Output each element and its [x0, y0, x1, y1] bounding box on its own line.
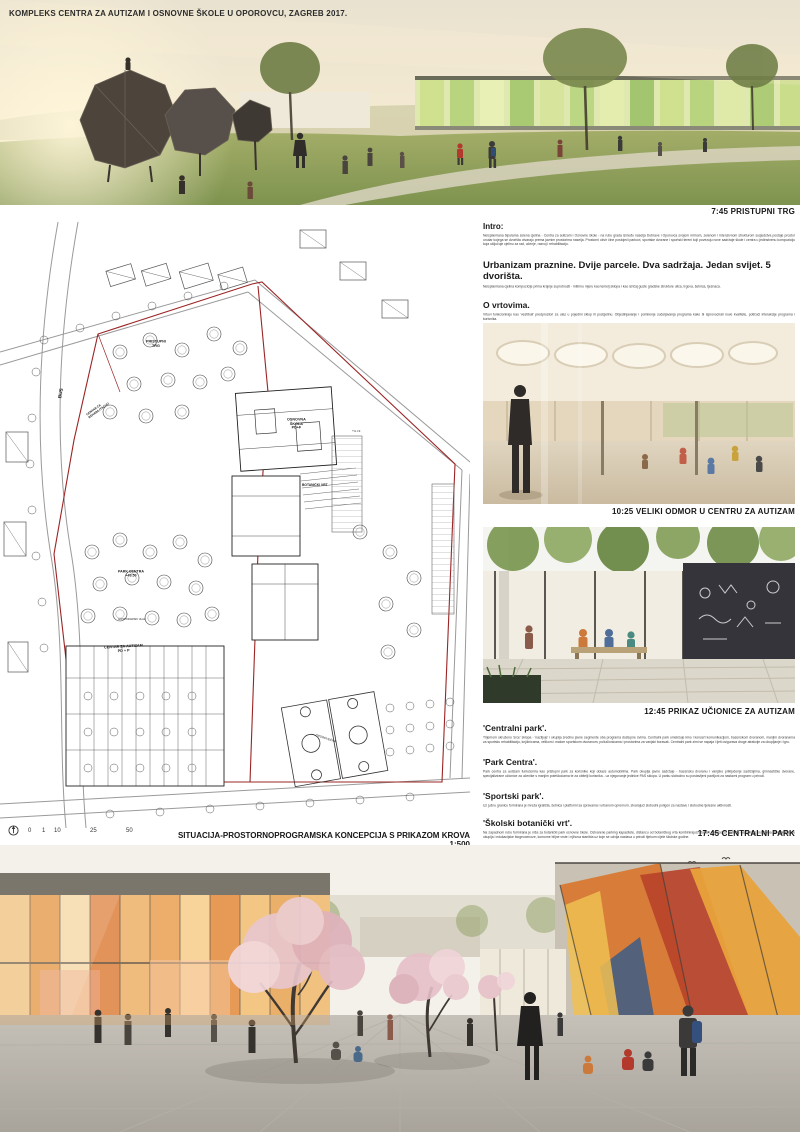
plan-label-park-centra: PARK CENTRA +49.50: [118, 570, 144, 578]
plan-label-elev-475: +4.75: [352, 430, 360, 434]
paragraph-sportski-park: Uz južnu granicu formirana je mreža igra…: [483, 804, 795, 808]
heading-botanicki-vrt: 'Školski botanički vrt'.: [483, 818, 795, 828]
caption-veliki-odmor: 10:25 VELIKI ODMOR U CENTRU ZA AUTIZAM: [612, 507, 795, 516]
heading-park-centra: 'Park Centra'.: [483, 757, 795, 767]
scale-tick-25: 25: [90, 828, 97, 834]
heading-sportski-park: 'Sportski park'.: [483, 791, 795, 801]
intro-heading: Intro:: [483, 222, 795, 231]
render-ucionica-autizam: [483, 527, 795, 703]
paragraph-urbanizam: Neisplanirana cjelina kompozicije prima …: [483, 285, 795, 289]
scale-tick-50: 50: [126, 828, 133, 834]
hero-bottom-illustration: [0, 845, 800, 1132]
site-plan: PRISTUPNI TRG BUS CENTAR ZA REHABILITACI…: [0, 222, 470, 828]
paragraph-o-vrtovima: Vrtovi funkcioniraju kao 'vestibuli' pre…: [483, 313, 795, 322]
scale-tick-0: 0: [28, 828, 31, 834]
hero-top-caption: 7:45 PRISTUPNI TRG: [711, 207, 795, 216]
heading-centralni-park: 'Centralni park'.: [483, 723, 795, 733]
paragraph-centralni-park: Trijemom okruženo 'srce' sklopa - 'nazil…: [483, 736, 795, 745]
render-interior-autizam: [483, 323, 795, 504]
plan-label-osnovna-skola: OSNOVNA ŠKOLA PD+F: [287, 418, 306, 430]
plan-scale-bar: 0 1 10 25 50: [8, 825, 168, 839]
paragraph-park-centra: Park centra za autizam funkcionira kao p…: [483, 770, 795, 779]
caption-centralni-park: 17:45 CENTRALNI PARK: [698, 829, 795, 838]
scale-tick-10: 10: [54, 828, 61, 834]
site-plan-drawing: [0, 222, 470, 828]
text-column: Intro: Neisplanirana bipolarna zelena cj…: [483, 220, 795, 842]
competition-board: KOMPLEKS CENTRA ZA AUTIZAM I OSNOVNE ŠKO…: [0, 0, 800, 1132]
hero-top-illustration: [0, 0, 800, 205]
plan-label-botanicki-vrt: BOTANIČKI VRT: [302, 484, 328, 488]
scale-tick-1: 1: [42, 828, 45, 834]
intro-paragraph: Neisplanirana bipolarna zelena cjelina -…: [483, 234, 795, 247]
board-title: KOMPLEKS CENTRA ZA AUTIZAM I OSNOVNE ŠKO…: [9, 9, 347, 18]
parks-text-block: 'Centralni park'. Trijemom okruženo 'src…: [483, 723, 795, 844]
heading-o-vrtovima: O vrtovima.: [483, 300, 795, 310]
plan-label-pristupni-trg: PRISTUPNI TRG: [146, 340, 166, 348]
heading-urbanizam: Urbanizam praznine. Dvije parcele. Dva s…: [483, 260, 795, 282]
hero-render-entry-square: [0, 0, 800, 205]
caption-prikaz-ucionice: 12:45 PRIKAZ UČIONICE ZA AUTIZAM: [644, 707, 795, 716]
hero-render-central-park: [0, 845, 800, 1132]
north-arrow-icon: [8, 825, 19, 836]
plan-label-gospodarski-ulaz: GOSPODARSKI ULAZ: [118, 618, 146, 621]
